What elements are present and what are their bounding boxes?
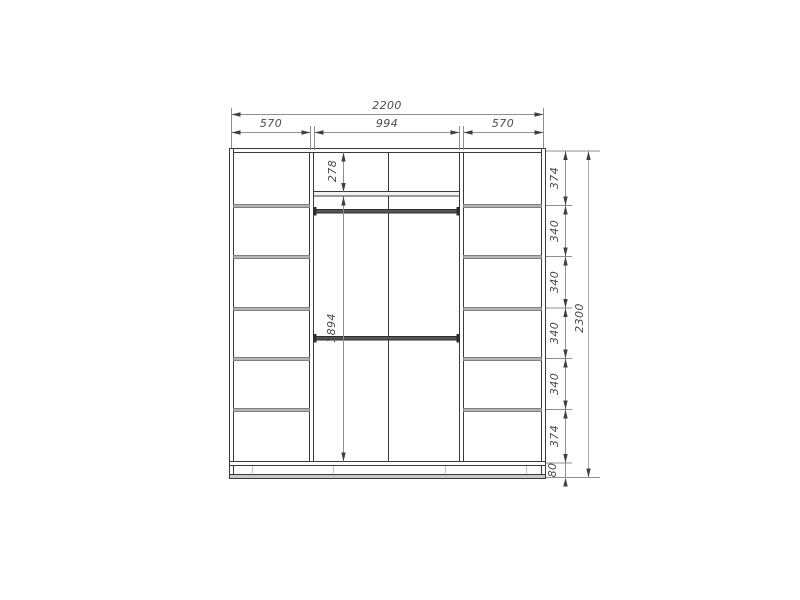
dim-arrow [563, 206, 567, 215]
shelf-line [234, 409, 310, 412]
dim-label-chain-7: 80 [547, 450, 559, 490]
middle-top-shelf [314, 192, 460, 197]
dim-arrow [563, 410, 567, 419]
dim-label-width-left: 570 [241, 118, 301, 130]
dim-label-upper-shelf: 278 [327, 151, 339, 191]
dim-label-height-total: 2300 [574, 294, 586, 342]
dim-arrow [232, 130, 241, 134]
dim-arrow [451, 130, 460, 134]
plinth-feet-marks [253, 466, 527, 473]
dim-arrow [341, 197, 345, 206]
dimension-arrows [232, 112, 591, 486]
dim-arrow [563, 350, 567, 359]
shelf-line [234, 256, 310, 259]
dim-label-width-middle: 994 [357, 118, 417, 130]
dim-arrow [563, 299, 567, 308]
wardrobe-linework [0, 0, 800, 600]
dim-arrow [315, 130, 324, 134]
shelf-line [464, 205, 542, 208]
dim-arrow [563, 308, 567, 317]
dim-arrow [563, 197, 567, 206]
cabinet-structure [230, 149, 546, 479]
shelf-line [464, 409, 542, 412]
dim-label-chain-2: 340 [549, 211, 561, 251]
dim-arrow [341, 453, 345, 462]
dim-arrow [563, 454, 567, 463]
dim-arrow [563, 401, 567, 410]
bottom-panel [230, 462, 546, 466]
shelf-line [464, 256, 542, 259]
rod-end-cap [457, 208, 460, 216]
dim-label-width-right: 570 [473, 118, 533, 130]
dim-arrow [563, 359, 567, 368]
rod-end-cap [457, 335, 460, 343]
dim-label-chain-3: 340 [549, 262, 561, 302]
dim-label-chain-4: 340 [549, 313, 561, 353]
right-side-panel [542, 149, 546, 479]
left-column-shelves [234, 205, 310, 412]
hanging-rod-upper [314, 210, 460, 214]
shelf-line [234, 358, 310, 361]
dim-label-hanging-space: 1894 [326, 304, 338, 352]
dim-arrow [563, 478, 567, 487]
divider-left [310, 153, 314, 462]
shelf-line [234, 308, 310, 311]
shelf-line [464, 358, 542, 361]
shelf-line [464, 308, 542, 311]
dim-arrow [341, 153, 345, 162]
rod-end-cap [314, 208, 317, 216]
dim-label-width-total: 2200 [347, 100, 427, 112]
divider-right [460, 153, 464, 462]
dim-label-chain-5: 340 [549, 364, 561, 404]
dim-arrow [563, 257, 567, 266]
shelf-line [234, 205, 310, 208]
drawing-canvas: 2200 570 994 570 278 1894 374 340 340 34… [0, 0, 800, 600]
dim-arrow [586, 151, 590, 160]
left-side-panel [230, 149, 234, 479]
dim-arrow [341, 183, 345, 192]
plinth-base [230, 475, 546, 479]
rod-end-cap [314, 335, 317, 343]
dim-arrow [535, 112, 544, 116]
dim-arrow [586, 469, 590, 478]
dim-arrow [535, 130, 544, 134]
dim-arrow [232, 112, 241, 116]
dim-arrow [563, 248, 567, 257]
right-column-shelves [464, 205, 542, 412]
dim-arrow [563, 151, 567, 160]
dim-arrow [464, 130, 473, 134]
dim-label-chain-1: 374 [549, 158, 561, 198]
top-panel [230, 149, 546, 153]
dim-arrow [302, 130, 311, 134]
